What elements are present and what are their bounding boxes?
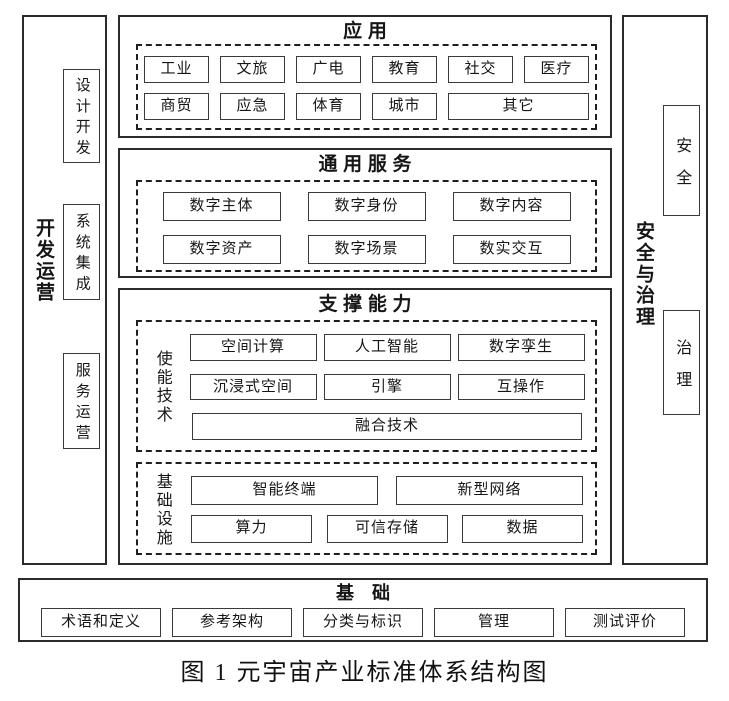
sports-box: 体育: [296, 93, 361, 120]
supporting-capability-section: 支撑能力 使能技术 空间计算 人工智能 数字孪生 沉浸式空间 引擎 互操作 融合…: [118, 288, 612, 565]
computing-power-box: 算力: [191, 515, 312, 544]
terms-definitions-box: 术语和定义: [41, 608, 161, 637]
devops-bar: 开发运营 设计开发 系统集成 服务运营: [22, 15, 107, 565]
application-row-2: 商贸 应急 体育 城市 其它: [138, 93, 595, 120]
enabling-tech-label-column: 使能技术: [138, 322, 186, 450]
enabling-row-1: 空间计算 人工智能 数字孪生: [188, 334, 586, 361]
general-services-dashed-group: 数字主体 数字身份 数字内容 数字资产 数字场景 数实交互: [136, 180, 597, 272]
culture-tourism-box: 文旅: [220, 56, 285, 83]
others-box: 其它: [448, 93, 589, 120]
security-label: 安全: [673, 137, 691, 201]
digital-subject-box: 数字主体: [163, 192, 281, 221]
services-row-1: 数字主体 数字身份 数字内容: [138, 192, 595, 221]
artificial-intelligence-box: 人工智能: [324, 334, 451, 361]
engine-box: 引擎: [324, 374, 451, 401]
infrastructure-label-column: 基础设施: [138, 464, 186, 553]
service-operation-label: 服务运营: [73, 362, 90, 445]
design-dev-box: 设计开发: [63, 69, 100, 163]
figure-caption: 图 1 元宇宙产业标准体系结构图: [0, 652, 729, 687]
governance-label: 治理: [673, 339, 691, 403]
medical-box: 医疗: [524, 56, 589, 83]
new-network-box: 新型网络: [396, 476, 583, 505]
enabling-tech-label: 使能技术: [153, 350, 171, 424]
smart-terminal-box: 智能终端: [191, 476, 378, 505]
general-services-section-title: 通用服务: [120, 150, 610, 174]
security-box: 安全: [663, 105, 700, 216]
devops-bar-label: 开发运营: [34, 218, 53, 303]
converged-tech-box: 融合技术: [192, 413, 582, 440]
digital-twin-box: 数字孪生: [458, 334, 585, 361]
digital-identity-box: 数字身份: [308, 192, 426, 221]
commerce-box: 商贸: [144, 93, 209, 120]
infrastructure-dashed-group: 基础设施 智能终端 新型网络 算力 可信存储 数据: [136, 462, 597, 555]
design-dev-label: 设计开发: [73, 77, 90, 160]
enabling-row-3: 融合技术: [188, 413, 586, 440]
data-box: 数据: [462, 515, 583, 544]
services-row-2: 数字资产 数字场景 数实交互: [138, 235, 595, 264]
emergency-box: 应急: [220, 93, 285, 120]
general-services-section: 通用服务 数字主体 数字身份 数字内容 数字资产 数字场景 数实交互: [118, 148, 612, 278]
enabling-tech-grid: 空间计算 人工智能 数字孪生 沉浸式空间 引擎 互操作 融合技术: [186, 322, 595, 450]
social-box: 社交: [448, 56, 513, 83]
trusted-storage-box: 可信存储: [327, 515, 448, 544]
security-governance-bar-label: 安全与治理: [634, 221, 653, 327]
infrastructure-grid: 智能终端 新型网络 算力 可信存储 数据: [186, 464, 595, 553]
service-operation-box: 服务运营: [63, 353, 100, 449]
application-dashed-group: 工业 文旅 广电 教育 社交 医疗 商贸 应急 体育 城市 其它: [136, 44, 597, 130]
interoperability-box: 互操作: [458, 374, 585, 401]
foundation-row: 术语和定义 参考架构 分类与标识 管理 测试评价: [20, 608, 706, 637]
management-box: 管理: [434, 608, 554, 637]
supporting-capability-section-title: 支撑能力: [120, 290, 610, 314]
immersive-space-box: 沉浸式空间: [190, 374, 317, 401]
education-box: 教育: [372, 56, 437, 83]
infrastructure-row-1: 智能终端 新型网络: [188, 476, 586, 505]
testing-evaluation-box: 测试评价: [565, 608, 685, 637]
system-integration-box: 系统集成: [63, 204, 100, 300]
digital-content-box: 数字内容: [453, 192, 571, 221]
governance-box: 治理: [663, 310, 700, 415]
enabling-tech-dashed-group: 使能技术 空间计算 人工智能 数字孪生 沉浸式空间 引擎 互操作 融合技术: [136, 320, 597, 452]
application-row-1: 工业 文旅 广电 教育 社交 医疗: [138, 56, 595, 83]
foundation-section-title: 基础: [20, 580, 706, 602]
diagram-canvas: 开发运营 设计开发 系统集成 服务运营 安全与治理 安全 治理 应用 工业 文旅…: [0, 0, 729, 701]
broadcasting-box: 广电: [296, 56, 361, 83]
digital-asset-box: 数字资产: [163, 235, 281, 264]
infrastructure-row-2: 算力 可信存储 数据: [188, 515, 586, 544]
infrastructure-label: 基础设施: [153, 473, 171, 547]
system-integration-label: 系统集成: [73, 213, 90, 296]
reference-architecture-box: 参考架构: [172, 608, 292, 637]
city-box: 城市: [372, 93, 437, 120]
foundation-section: 基础 术语和定义 参考架构 分类与标识 管理 测试评价: [18, 578, 708, 642]
industry-box: 工业: [144, 56, 209, 83]
security-governance-bar: 安全与治理 安全 治理: [622, 15, 708, 565]
spatial-computing-box: 空间计算: [190, 334, 317, 361]
application-section-title: 应用: [120, 17, 610, 41]
application-section: 应用 工业 文旅 广电 教育 社交 医疗 商贸 应急 体育 城市 其它: [118, 15, 612, 138]
digital-real-interaction-box: 数实交互: [453, 235, 571, 264]
enabling-row-2: 沉浸式空间 引擎 互操作: [188, 374, 586, 401]
digital-scene-box: 数字场景: [308, 235, 426, 264]
classification-identification-box: 分类与标识: [303, 608, 423, 637]
